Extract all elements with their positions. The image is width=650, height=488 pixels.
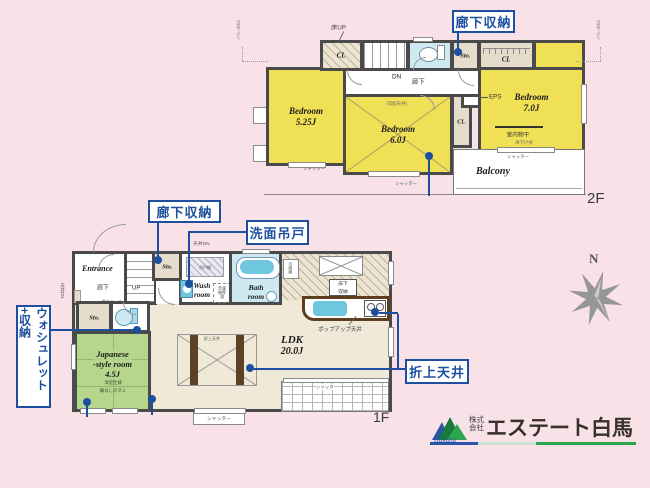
- leader-dot: [185, 280, 193, 288]
- hanging-cabinet: 吊戸棚: [186, 257, 224, 277]
- roof-slope-note: 母屋下がり: [596, 20, 601, 40]
- callout-text: 廊下収納: [455, 12, 511, 31]
- window: [388, 327, 394, 357]
- room-bedroom-6: Bedroom 6.0J: [343, 94, 453, 175]
- window: [368, 171, 420, 177]
- hallway-1f-label: 廊下: [97, 284, 109, 291]
- room-name: Bedroom: [289, 106, 323, 116]
- leader-line: [188, 231, 190, 281]
- leader-line: [151, 402, 153, 415]
- logo-stripe: [536, 442, 636, 445]
- shutter-label: シャッター: [207, 415, 231, 422]
- leader-line: [379, 312, 398, 314]
- roof-slope-leader: [242, 61, 268, 63]
- callout-coffered-ceiling: 折上天井: [405, 359, 469, 384]
- underfloor-label: 収納: [338, 289, 348, 293]
- leader-line: [457, 33, 459, 49]
- window: [288, 162, 326, 168]
- up-label: UP: [132, 284, 140, 291]
- room-name: Bedroom: [514, 92, 548, 102]
- closet-over-stairs: CL: [320, 40, 363, 71]
- closet-label: CL: [502, 56, 511, 64]
- window: [71, 344, 76, 370]
- indoor-drying-label: 室内物干: [506, 131, 529, 138]
- roof-slope-leader: [576, 61, 601, 63]
- storage-label: Sto.: [460, 52, 470, 59]
- leader-dot: [154, 256, 162, 264]
- leader-line: [51, 329, 136, 331]
- room-size: 6.0J: [390, 135, 406, 145]
- window: [242, 249, 270, 254]
- ceiling-down-label: 天井DN: [60, 283, 65, 298]
- window: [497, 147, 555, 153]
- refrigerator-label: 冷蔵庫: [288, 262, 293, 274]
- leader-line: [157, 223, 159, 257]
- floor1-label: 1F: [373, 409, 389, 425]
- room-name: Japanese: [96, 349, 129, 359]
- jroom-note: 洋室仕様: [104, 381, 122, 385]
- leader-line: [189, 231, 246, 233]
- bathtub-water: [240, 260, 274, 274]
- ceiling-down-label: 天井DN: [193, 241, 210, 247]
- floorplan-canvas: Bedroom 5.25J 廊下 CL Sto. CL Bedroom 7.0J…: [0, 0, 650, 488]
- floor2-label: 2F: [587, 190, 605, 207]
- callout-text: 廊下収納: [156, 202, 212, 221]
- eps-tick: [479, 97, 488, 98]
- callout-text: 折上天井: [409, 362, 465, 381]
- leader-dot: [133, 326, 141, 334]
- underfloor-label: 床下: [338, 282, 348, 286]
- popup-ceiling-label: ポップアップ天井: [318, 326, 362, 332]
- leader-line: [253, 368, 405, 370]
- drying-note: 吊下げ式: [515, 140, 533, 145]
- balcony-rail: [456, 188, 582, 189]
- callout-washlet-storage: ウォシュレット+収納: [16, 305, 51, 408]
- hallway-2f-label: 廊下: [412, 78, 425, 85]
- bath-stool: [266, 291, 277, 302]
- callout-text: 洗面吊戸: [249, 223, 305, 242]
- drying-bar: [495, 126, 543, 128]
- ldk-label: LDK: [262, 334, 322, 346]
- window: [413, 37, 433, 42]
- shutter-label: シャッター: [316, 384, 338, 390]
- balcony-label: Balcony: [476, 166, 510, 177]
- window: [581, 84, 587, 124]
- callout-wash-cabinet: 洗面吊戸: [246, 220, 309, 245]
- stairs-2f: [361, 40, 409, 71]
- logo-stripe: [430, 442, 478, 445]
- toilet-tank: [437, 45, 445, 60]
- coffered-ceiling: 折上天井: [177, 334, 257, 386]
- callout-hallway-storage-2f: 廊下収納: [452, 10, 515, 33]
- window: [194, 408, 246, 414]
- room-bedroom-5-25: Bedroom 5.25J: [266, 67, 346, 166]
- room-size: 4.5J: [105, 369, 120, 379]
- bath-room: Bath room: [229, 251, 282, 305]
- logo-stripe: [478, 442, 536, 445]
- laundry-label: 洗濯機置場: [218, 287, 226, 300]
- roof-slope-leader: [600, 47, 602, 61]
- company-name: エステート白馬: [486, 412, 633, 442]
- shutter-label: シャッター: [395, 181, 417, 186]
- ceiling-beam: [190, 335, 198, 385]
- shutter-label: シャッター: [507, 154, 529, 159]
- window: [283, 378, 389, 383]
- underfloor-storage: 床下 収納: [329, 279, 357, 296]
- room-name: -style room: [93, 359, 132, 369]
- compass-rose-icon: [559, 261, 632, 334]
- window: [388, 261, 394, 285]
- skylight-box: [319, 256, 363, 276]
- leader-line: [86, 405, 88, 417]
- leader-line: [397, 314, 399, 370]
- eps-label: EPS: [489, 93, 501, 100]
- wood-deck: シャッター: [281, 381, 389, 412]
- jroom-note: 縁なしタタミ: [99, 388, 125, 392]
- closet-label: CL: [337, 52, 346, 60]
- leader-dot: [246, 364, 254, 372]
- down-label: DN: [392, 73, 401, 80]
- room-size: 5.25J: [296, 117, 316, 127]
- window: [112, 408, 138, 414]
- leader-dot: [371, 308, 379, 316]
- entrance-door-arc: [93, 224, 126, 252]
- company-prefix: 会社: [469, 424, 484, 432]
- room-name: Bedroom: [381, 124, 415, 134]
- callout-hallway-storage-1f: 廊下収納: [148, 200, 221, 223]
- storage-label: Sto.: [89, 313, 99, 320]
- kitchen-sink: [313, 301, 347, 316]
- leader-line: [428, 160, 430, 196]
- hanging-cabinet-label: 吊戸棚: [199, 264, 211, 270]
- hanger-rod: [483, 48, 530, 54]
- closet-label: CL: [458, 118, 466, 125]
- window: [80, 408, 106, 414]
- ceiling-beam: [236, 335, 244, 385]
- leader-dot: [454, 48, 462, 56]
- roof-slope-note: 母屋下がり: [236, 20, 241, 40]
- ldk-size: 20.0J: [262, 346, 322, 357]
- coffered-note: 折上天井: [204, 336, 220, 342]
- storage-label: Sto.: [162, 262, 172, 269]
- eps-shaft: [461, 94, 481, 108]
- roof-slope-leader: [242, 47, 244, 61]
- refrigerator: 冷蔵庫: [283, 259, 299, 279]
- room-size: 7.0J: [524, 103, 540, 113]
- callout-text: ウォシュレット+収納: [17, 307, 51, 406]
- floor-up-label: 床UP: [331, 24, 346, 31]
- company-logo: Hakuba 株式 会社 エステート白馬: [428, 408, 640, 450]
- leader-dot: [425, 152, 433, 160]
- sloped-ceiling-note: (勾配天井): [386, 101, 407, 106]
